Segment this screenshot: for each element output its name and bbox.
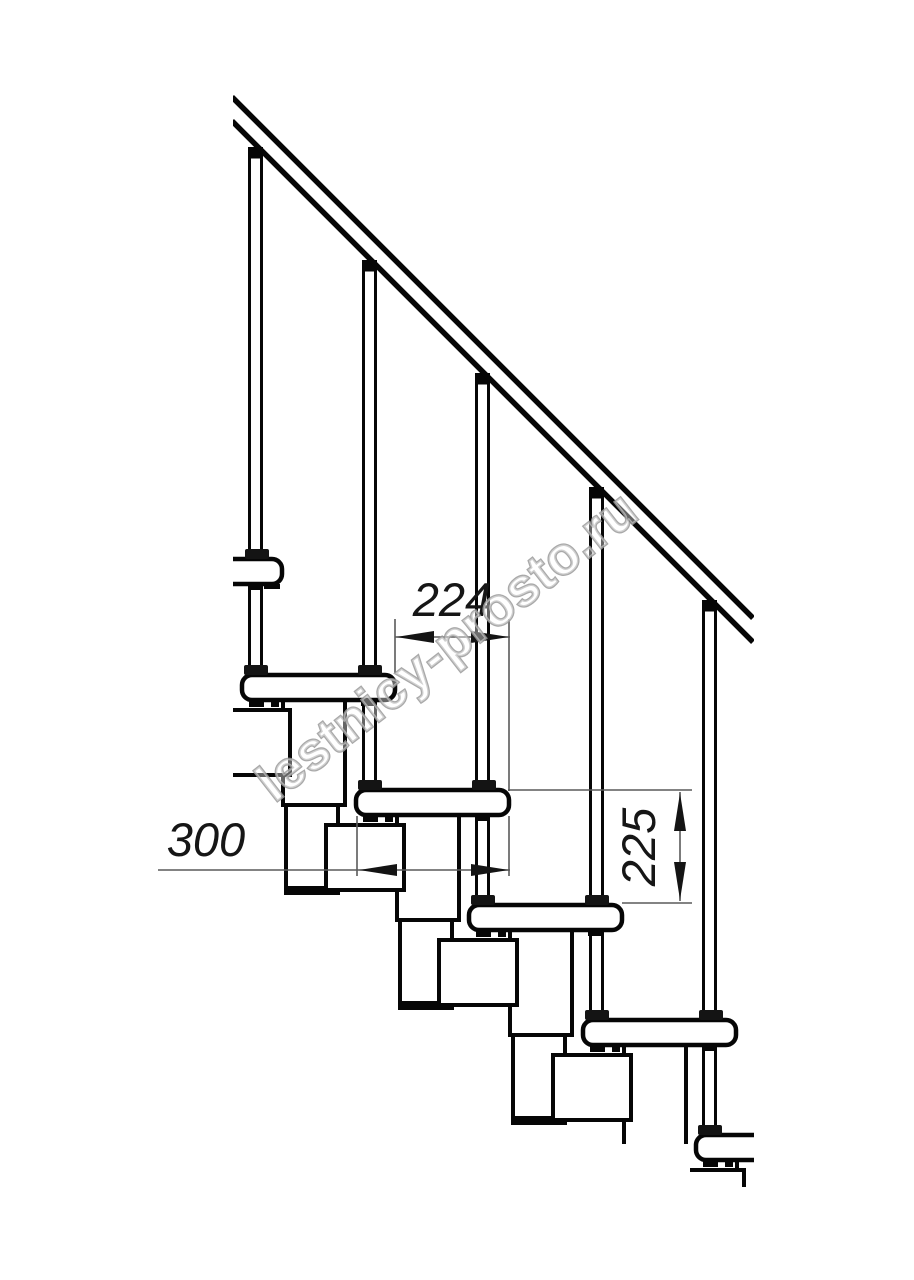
tread bbox=[356, 790, 509, 815]
module-square bbox=[666, 1170, 744, 1235]
tread bbox=[469, 905, 622, 930]
module-square bbox=[553, 1055, 631, 1120]
stair-structure bbox=[129, 97, 849, 1265]
module-box bbox=[624, 1045, 686, 1150]
module-box bbox=[397, 815, 459, 920]
watermark-text: lestnicy-prosto.ru bbox=[246, 480, 649, 813]
staircase-technical-drawing: 224 300 225 lestnicy-prosto.ru bbox=[0, 0, 914, 1280]
arrow-up-icon bbox=[674, 793, 686, 831]
tread bbox=[696, 1135, 849, 1160]
handrail bbox=[232, 97, 753, 642]
dimension-value: 300 bbox=[167, 813, 245, 866]
module-box bbox=[737, 1160, 799, 1265]
module-square bbox=[326, 825, 404, 890]
tread bbox=[129, 559, 282, 584]
staircase-drawing-page: 224 300 225 lestnicy-prosto.ru bbox=[0, 0, 914, 1280]
tread bbox=[583, 1020, 736, 1045]
arrow-down-icon bbox=[674, 862, 686, 900]
baluster bbox=[702, 600, 717, 1135]
dimension-value: 225 bbox=[612, 807, 665, 887]
baluster bbox=[248, 147, 263, 675]
module-box bbox=[510, 930, 572, 1035]
module-square bbox=[439, 940, 517, 1005]
